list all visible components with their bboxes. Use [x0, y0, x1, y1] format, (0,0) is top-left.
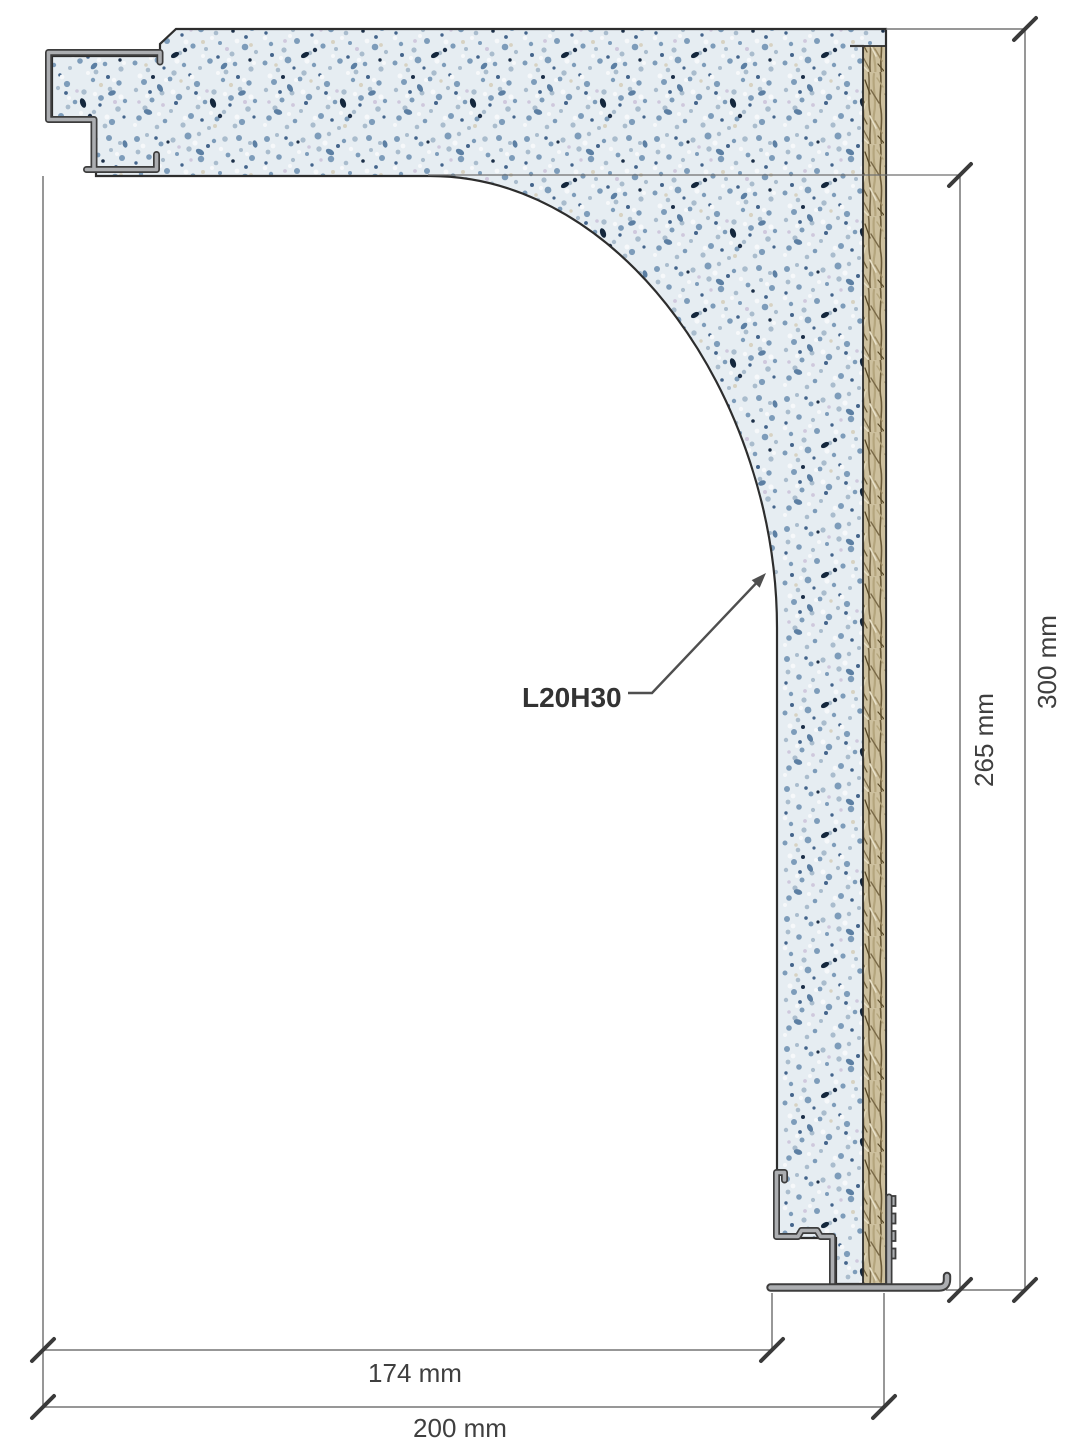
cove-profile-section-drawing: L20H30 174 mm 200 mm 265 mm 300 mm [0, 0, 1066, 1440]
dimension-label-200: 200 mm [413, 1413, 507, 1440]
dimension-label-300: 300 mm [1032, 615, 1062, 709]
drawing-background [0, 0, 1066, 1440]
dimension-label-265: 265 mm [969, 693, 999, 787]
wood-wool-board [863, 46, 886, 1284]
profile-label: L20H30 [522, 682, 622, 713]
dimension-label-174: 174 mm [368, 1358, 462, 1388]
technical-drawing-canvas: L20H30 174 mm 200 mm 265 mm 300 mm [0, 0, 1066, 1440]
